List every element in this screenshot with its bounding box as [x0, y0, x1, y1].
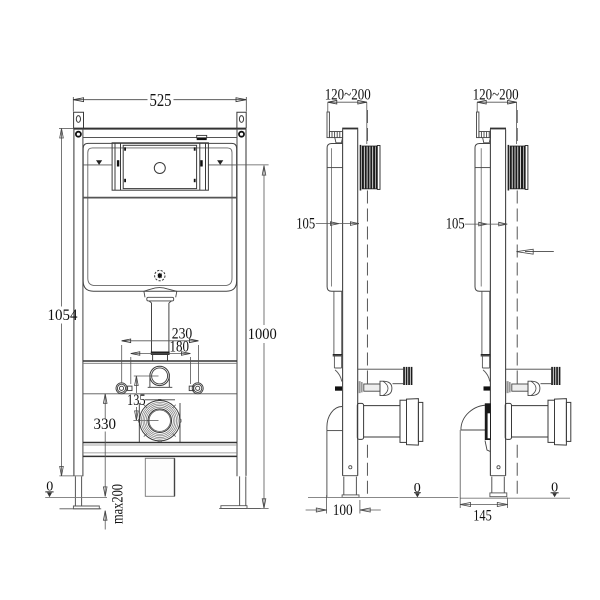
svg-text:180: 180	[170, 338, 190, 355]
svg-text:1000: 1000	[248, 326, 277, 343]
svg-text:135: 135	[127, 392, 146, 409]
svg-text:120~200: 120~200	[473, 87, 519, 104]
svg-text:100: 100	[333, 502, 353, 519]
svg-text:120~200: 120~200	[325, 87, 371, 104]
svg-text:max200: max200	[110, 484, 127, 524]
svg-text:330: 330	[94, 416, 117, 433]
svg-text:525: 525	[150, 90, 172, 110]
svg-text:1054: 1054	[48, 307, 78, 324]
svg-text:145: 145	[473, 508, 492, 525]
svg-text:105: 105	[446, 215, 465, 232]
svg-text:105: 105	[296, 215, 315, 232]
